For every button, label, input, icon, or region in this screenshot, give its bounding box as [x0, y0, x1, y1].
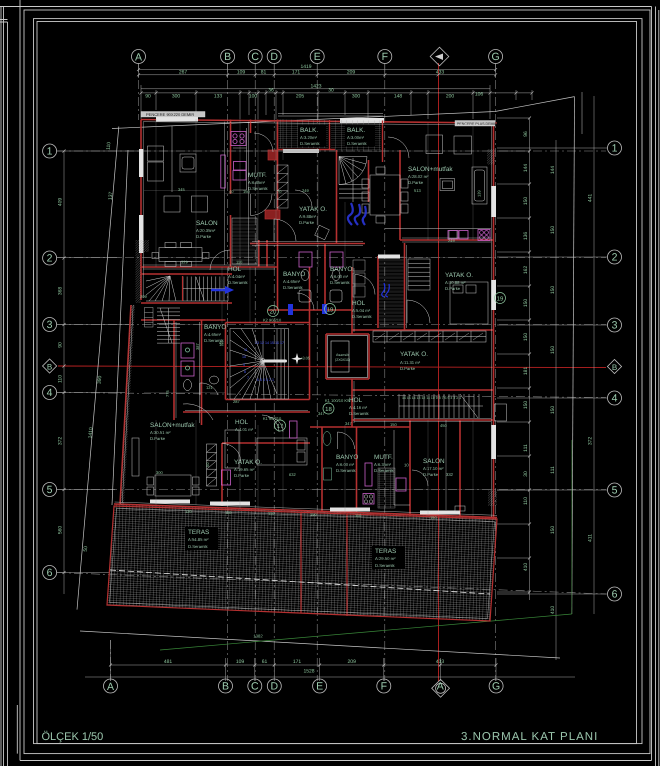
- svg-text:1419: 1419: [300, 64, 311, 70]
- svg-text:A:28.02 m²: A:28.02 m²: [408, 174, 429, 179]
- svg-text:YATAK O.: YATAK O.: [445, 272, 473, 279]
- svg-text:D.Parke: D.Parke: [445, 286, 461, 291]
- svg-text:19: 19: [327, 307, 334, 314]
- svg-text:110: 110: [268, 511, 275, 516]
- svg-text:A:4.04m²: A:4.04m²: [228, 274, 246, 279]
- svg-text:5: 5: [47, 484, 53, 496]
- svg-text:332: 332: [446, 472, 454, 477]
- svg-text:372: 372: [58, 437, 64, 446]
- svg-text:D.Seramik: D.Seramik: [283, 285, 303, 290]
- svg-text:A:4.16 m²: A:4.16 m²: [349, 405, 368, 410]
- svg-text:111: 111: [523, 444, 529, 452]
- svg-text:100: 100: [249, 94, 258, 100]
- svg-text:150: 150: [523, 299, 529, 308]
- svg-text:D.Parke: D.Parke: [408, 180, 424, 185]
- svg-text:90: 90: [145, 94, 151, 100]
- svg-text:18: 18: [325, 406, 332, 413]
- svg-text:205: 205: [296, 94, 305, 100]
- svg-text:G: G: [492, 681, 500, 693]
- svg-text:6 5 4 3 2 1: 6 5 4 3 2 1: [257, 378, 274, 382]
- svg-text:90: 90: [58, 342, 64, 348]
- svg-text:209: 209: [347, 70, 356, 76]
- svg-text:D: D: [271, 681, 279, 693]
- svg-text:11: 11: [244, 348, 248, 352]
- svg-text:ÖLÇEK 1/50: ÖLÇEK 1/50: [42, 730, 104, 743]
- svg-text:D.Parke: D.Parke: [423, 472, 439, 477]
- svg-text:200: 200: [446, 94, 455, 100]
- svg-text:139: 139: [477, 190, 482, 197]
- svg-text:144: 144: [523, 164, 529, 173]
- svg-text:SALON: SALON: [423, 458, 445, 465]
- svg-text:YATAK O.: YATAK O.: [400, 351, 428, 358]
- svg-text:19: 19: [497, 296, 504, 303]
- svg-text:150: 150: [550, 226, 556, 235]
- svg-text:9: 9: [243, 363, 245, 367]
- svg-text:+3.05: +3.05: [300, 356, 311, 361]
- svg-text:150: 150: [523, 333, 529, 342]
- svg-text:A:5.04 m²: A:5.04 m²: [352, 308, 371, 313]
- svg-text:C: C: [251, 681, 259, 693]
- svg-text:B: B: [612, 363, 617, 372]
- svg-text:BANYO: BANYO: [336, 454, 358, 461]
- svg-text:A:4.65m²: A:4.65m²: [283, 279, 301, 284]
- svg-text:50: 50: [83, 546, 89, 552]
- svg-text:3: 3: [47, 319, 53, 331]
- svg-text:121: 121: [206, 385, 213, 390]
- svg-text:150: 150: [550, 406, 556, 415]
- svg-text:F: F: [382, 51, 388, 63]
- svg-text:181: 181: [523, 367, 529, 376]
- svg-text:1382: 1382: [253, 634, 263, 639]
- svg-text:300: 300: [352, 94, 361, 100]
- svg-text:MUTF.: MUTF.: [374, 454, 393, 461]
- svg-text:8: 8: [244, 370, 246, 374]
- svg-text:2: 2: [47, 253, 53, 265]
- svg-text:4: 4: [612, 393, 618, 405]
- svg-text:300: 300: [172, 94, 181, 100]
- svg-text:BANYO: BANYO: [330, 266, 352, 273]
- svg-text:209: 209: [348, 659, 357, 665]
- svg-text:109: 109: [236, 659, 245, 665]
- svg-text:D.Parke: D.Parke: [234, 473, 250, 478]
- svg-text:6: 6: [47, 567, 53, 579]
- svg-text:70: 70: [277, 189, 282, 194]
- svg-text:HOL: HOL: [235, 419, 249, 426]
- svg-text:D.Seramik: D.Seramik: [347, 141, 367, 146]
- svg-text:SALON: SALON: [196, 220, 218, 227]
- svg-text:150: 150: [390, 422, 397, 427]
- svg-text:81: 81: [261, 70, 267, 76]
- svg-text:347: 347: [345, 421, 352, 426]
- svg-text:BANYO: BANYO: [204, 324, 226, 331]
- svg-text:300: 300: [156, 470, 163, 475]
- svg-text:16 15 14 13 12 11 10 9 8 7 6 5: 16 15 14 13 12 11 10 9 8 7 6 5 4 3 2 1: [402, 396, 461, 400]
- svg-text:1: 1: [47, 146, 53, 158]
- svg-text:A: A: [107, 681, 114, 693]
- svg-text:HOL: HOL: [228, 266, 242, 273]
- svg-text:150: 150: [310, 512, 317, 517]
- svg-text:D.Seramik: D.Seramik: [228, 280, 248, 285]
- svg-text:162: 162: [523, 266, 529, 275]
- svg-text:16: 16: [219, 342, 224, 347]
- svg-text:BALK.: BALK.: [347, 127, 365, 134]
- svg-text:A:30.51 m²: A:30.51 m²: [150, 430, 171, 435]
- svg-text:368: 368: [58, 287, 64, 296]
- svg-text:110: 110: [523, 497, 529, 505]
- svg-text:10: 10: [242, 355, 246, 359]
- svg-text:D: D: [270, 51, 278, 63]
- svg-text:D.Seramik: D.Seramik: [336, 468, 356, 473]
- svg-text:171: 171: [293, 659, 302, 665]
- svg-text:Asansör: Asansör: [336, 353, 350, 357]
- svg-text:D.Seramik: D.Seramik: [300, 141, 320, 146]
- svg-text:150: 150: [550, 286, 556, 295]
- svg-text:148: 148: [394, 94, 403, 100]
- svg-text:1410: 1410: [88, 427, 95, 439]
- svg-text:B: B: [224, 51, 231, 63]
- svg-text:E: E: [314, 51, 321, 63]
- svg-text:HOL: HOL: [349, 397, 363, 404]
- svg-text:20: 20: [270, 309, 277, 316]
- svg-text:A:19.65 m²: A:19.65 m²: [234, 467, 255, 472]
- svg-text:150: 150: [430, 515, 437, 520]
- svg-text:10: 10: [404, 463, 409, 468]
- svg-text:G: G: [492, 51, 500, 63]
- svg-text:513: 513: [414, 188, 421, 193]
- svg-text:267: 267: [179, 70, 188, 76]
- svg-text:13 12 14 15 16 17: 13 12 14 15 16 17: [255, 341, 284, 345]
- svg-text:D.Seramik: D.Seramik: [352, 314, 372, 319]
- svg-text:D.Seramik: D.Seramik: [349, 411, 369, 416]
- svg-text:A:3.20m²: A:3.20m²: [300, 135, 318, 140]
- svg-text:111: 111: [550, 466, 556, 474]
- svg-text:SALON+mutfak: SALON+mutfak: [150, 422, 195, 429]
- svg-text:A: A: [437, 681, 444, 693]
- svg-text:329: 329: [181, 260, 188, 265]
- svg-text:2: 2: [612, 252, 618, 264]
- svg-text:D.Parke: D.Parke: [196, 234, 212, 239]
- svg-text:A:3.00m²: A:3.00m²: [347, 135, 365, 140]
- svg-text:120: 120: [185, 509, 192, 514]
- svg-text:96: 96: [523, 131, 529, 137]
- svg-text:A:6.35m²: A:6.35m²: [374, 462, 392, 467]
- svg-text:D.Seramik: D.Seramik: [374, 468, 394, 473]
- svg-text:PENCERE 90X220 DEMIR: PENCERE 90X220 DEMIR: [146, 112, 194, 117]
- svg-text:110: 110: [106, 141, 113, 150]
- svg-text:A:17.10 m²: A:17.10 m²: [423, 466, 444, 471]
- svg-text:409: 409: [58, 198, 64, 207]
- svg-text:30: 30: [328, 88, 334, 94]
- svg-text:287: 287: [233, 399, 240, 404]
- svg-text:560: 560: [58, 526, 64, 535]
- svg-text:61: 61: [262, 659, 268, 665]
- svg-text:110: 110: [236, 260, 243, 265]
- svg-text:411: 411: [588, 534, 594, 542]
- svg-text:1423: 1423: [310, 84, 321, 90]
- svg-text:110: 110: [225, 510, 232, 515]
- svg-text:150: 150: [243, 189, 250, 194]
- svg-text:345: 345: [178, 187, 185, 192]
- svg-text:A:6.85m²: A:6.85m²: [248, 180, 266, 185]
- svg-text:150: 150: [550, 346, 556, 355]
- svg-text:50: 50: [205, 462, 210, 467]
- svg-text:150: 150: [550, 526, 556, 535]
- svg-text:SALON+mutfak: SALON+mutfak: [408, 166, 453, 173]
- svg-text:433: 433: [436, 659, 445, 665]
- svg-text:D.Parke: D.Parke: [299, 220, 315, 225]
- svg-text:372: 372: [588, 437, 594, 446]
- svg-text:481: 481: [164, 659, 173, 665]
- svg-text:5: 5: [612, 485, 618, 497]
- svg-text:TERAS: TERAS: [188, 529, 209, 536]
- svg-text:36: 36: [268, 88, 274, 94]
- svg-text:249: 249: [302, 188, 309, 193]
- svg-text:A:10.88 m²: A:10.88 m²: [445, 280, 466, 285]
- svg-text:D.Seramik: D.Seramik: [330, 280, 350, 285]
- svg-text:40: 40: [229, 189, 234, 194]
- svg-text:347: 347: [318, 411, 325, 416]
- svg-text:A: A: [135, 51, 142, 63]
- svg-text:30: 30: [523, 471, 529, 477]
- svg-text:C: C: [251, 51, 259, 63]
- svg-text:D.Parke: D.Parke: [150, 436, 166, 441]
- svg-text:171: 171: [292, 70, 301, 76]
- svg-text:209: 209: [140, 294, 147, 299]
- svg-text:144: 144: [550, 166, 556, 175]
- svg-text:433: 433: [436, 70, 445, 76]
- svg-text:6: 6: [612, 589, 618, 601]
- svg-text:A:11.31 m²: A:11.31 m²: [400, 360, 421, 365]
- svg-text:A:6.00 m²: A:6.00 m²: [336, 462, 355, 467]
- svg-text:B: B: [222, 681, 229, 693]
- svg-text:K1 90/210: K1 90/210: [263, 416, 282, 421]
- svg-text:441: 441: [588, 194, 594, 203]
- svg-text:A:9.88m²: A:9.88m²: [299, 214, 317, 219]
- svg-text:F: F: [381, 681, 387, 693]
- svg-text:A:54.85 m²: A:54.85 m²: [188, 537, 209, 542]
- svg-text:150: 150: [523, 197, 529, 206]
- svg-text:410: 410: [550, 606, 556, 615]
- svg-text:150: 150: [523, 401, 529, 410]
- svg-text:K2 90/210: K2 90/210: [263, 318, 282, 323]
- svg-text:3.NORMAL KAT PLANI: 3.NORMAL KAT PLANI: [461, 731, 598, 743]
- svg-text:136: 136: [523, 232, 529, 241]
- svg-text:7: 7: [247, 376, 249, 380]
- svg-text:TERAS: TERAS: [375, 548, 396, 555]
- svg-text:110: 110: [58, 375, 64, 383]
- svg-text:D.Seramik: D.Seramik: [375, 563, 395, 568]
- svg-text:K1 100/10 KS: K1 100/10 KS: [325, 398, 350, 403]
- svg-text:A:4.01 m²: A:4.01 m²: [235, 427, 254, 432]
- svg-text:D.Parke: D.Parke: [400, 366, 416, 371]
- svg-text:109: 109: [237, 70, 246, 76]
- svg-text:390: 390: [97, 375, 104, 384]
- svg-text:BALK.: BALK.: [300, 127, 318, 134]
- svg-text:D.Seramik: D.Seramik: [188, 544, 208, 549]
- svg-text:387: 387: [195, 343, 200, 350]
- svg-text:BANYO: BANYO: [283, 271, 305, 278]
- svg-text:(2X0X10): (2X0X10): [335, 358, 350, 362]
- svg-text:A:4.65m²: A:4.65m²: [204, 332, 222, 337]
- svg-text:775: 775: [165, 390, 170, 397]
- svg-text:A:29.50 m²: A:29.50 m²: [375, 556, 396, 561]
- svg-text:1528: 1528: [303, 669, 314, 675]
- svg-text:YATAK O.: YATAK O.: [299, 206, 327, 213]
- svg-text:106: 106: [475, 92, 484, 98]
- svg-text:B: B: [47, 363, 52, 372]
- svg-text:1: 1: [612, 143, 618, 155]
- svg-text:D.Seramik: D.Seramik: [248, 186, 268, 191]
- svg-text:A:20.35m²: A:20.35m²: [196, 228, 216, 233]
- svg-text:410: 410: [523, 563, 529, 572]
- svg-text:133: 133: [214, 94, 223, 100]
- svg-text:249: 249: [448, 238, 455, 243]
- svg-text:MUTF.: MUTF.: [248, 172, 267, 179]
- svg-text:632: 632: [289, 472, 296, 477]
- svg-text:110: 110: [355, 513, 362, 518]
- svg-text:450: 450: [440, 423, 447, 428]
- svg-text:3: 3: [612, 320, 618, 332]
- svg-text:4: 4: [47, 387, 53, 399]
- svg-text:E: E: [316, 681, 323, 693]
